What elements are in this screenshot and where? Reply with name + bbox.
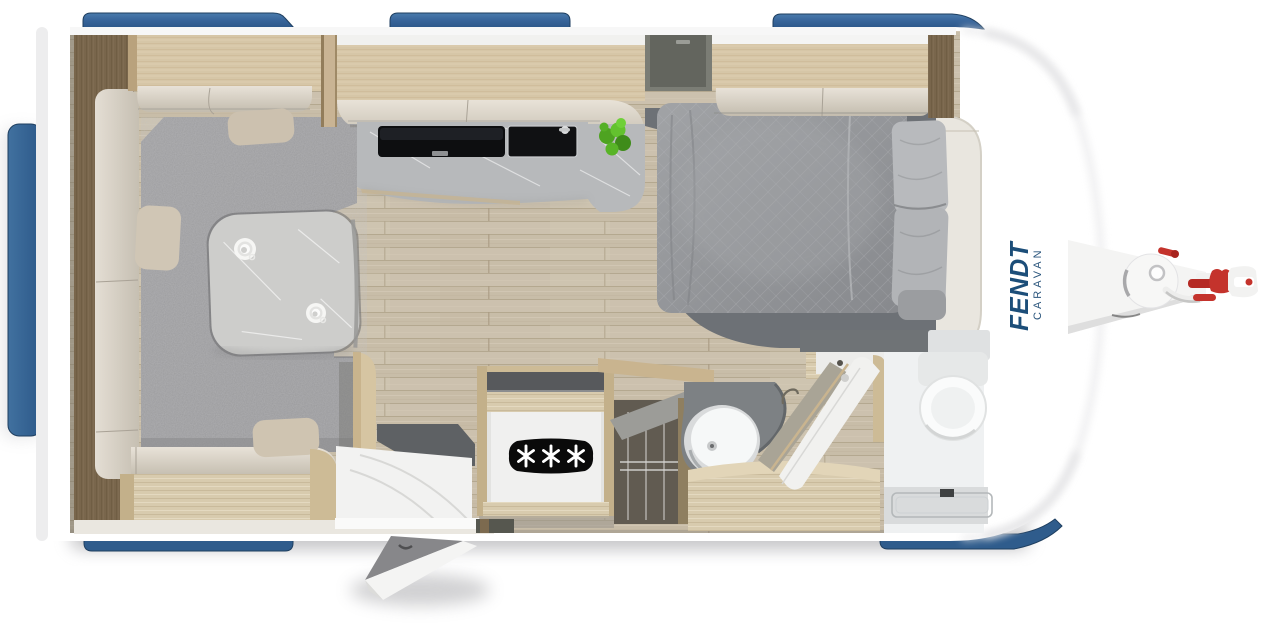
svg-text:CARAVAN: CARAVAN: [1032, 247, 1044, 320]
svg-text:FENDT: FENDT: [1004, 240, 1034, 331]
